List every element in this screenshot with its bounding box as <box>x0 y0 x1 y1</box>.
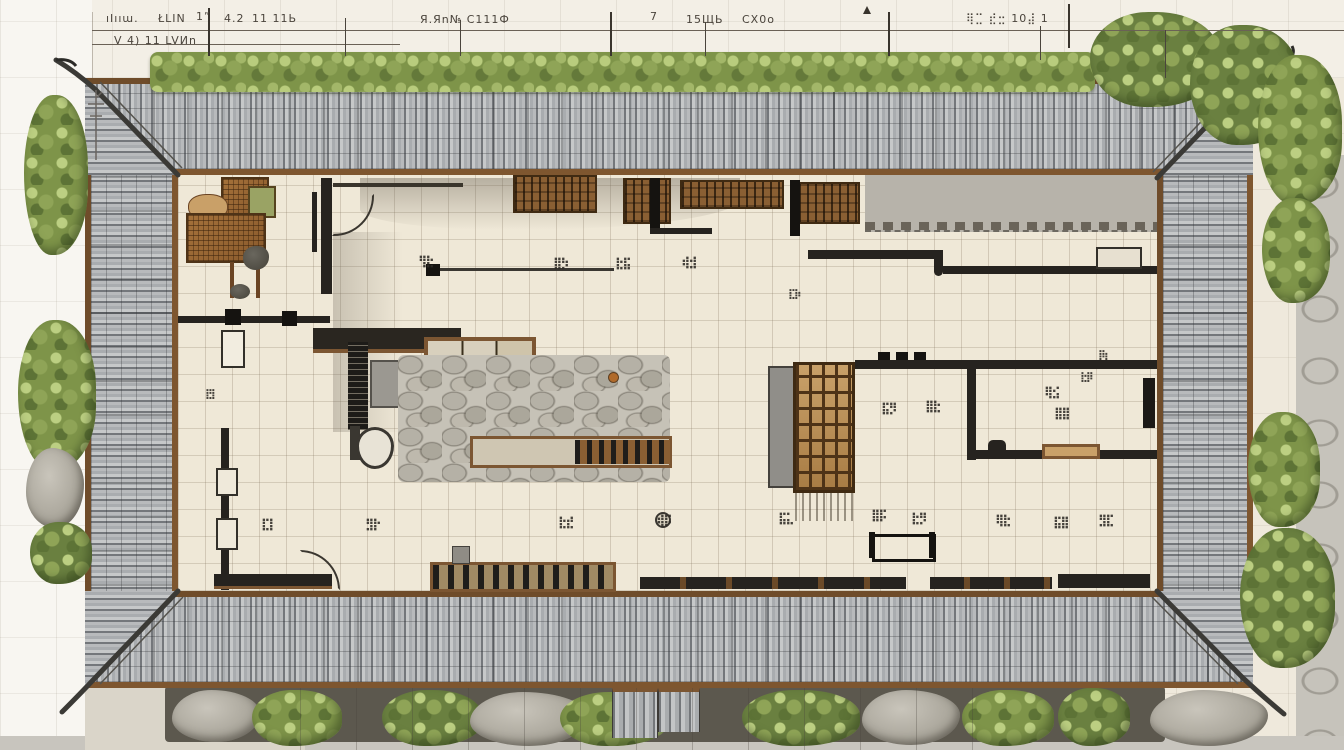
room-label: ⣗⣞ <box>558 515 573 529</box>
dark-lattice-rack <box>348 342 368 430</box>
ivy-right <box>1262 198 1330 303</box>
left-shelf-2 <box>216 518 238 550</box>
bottom-band-2 <box>430 562 616 592</box>
lattice-window-4 <box>797 182 860 224</box>
stool <box>230 284 250 299</box>
dimension-label: ⢿⣉ ⣞⣒ 10⣼ 1 <box>966 12 1049 25</box>
bottom-band-3 <box>640 577 906 589</box>
bench-box <box>452 546 470 564</box>
tree-right-edge <box>1258 55 1342 205</box>
bush-bottom-5 <box>962 690 1054 746</box>
dimension-label: СХ0о <box>742 13 775 26</box>
room-label: ⣗⡻ <box>911 511 926 525</box>
dimension-label: 11 11Ь <box>252 12 297 25</box>
counter-wall-a <box>808 250 942 259</box>
bush-bottom-6 <box>1058 688 1130 746</box>
bottom-band-4 <box>930 577 1052 589</box>
pot-stub <box>988 440 1006 458</box>
dim-arrow <box>863 6 871 14</box>
bush-left-top <box>24 95 88 255</box>
dimension-label: 7 <box>650 10 658 23</box>
top-hedge <box>150 52 1095 92</box>
room-label: ⣿⣿ <box>1054 406 1069 420</box>
partition-wall <box>321 178 332 294</box>
right-room-left-wall <box>967 360 976 460</box>
dim-tick-5 <box>1165 30 1166 78</box>
dimension-label: V 4) 11 LVИո <box>114 34 197 47</box>
shelf-band-lattice <box>575 440 670 464</box>
left-shelf-1 <box>216 468 238 496</box>
dimension-label: ıIııա. <box>106 12 139 25</box>
dim-tick-bold-4 <box>1068 4 1070 48</box>
top-wall-line <box>333 183 463 187</box>
low-table <box>872 534 936 562</box>
crenel-3 <box>914 352 926 360</box>
room-label: ⣿⡳ <box>553 256 568 270</box>
room-label: ⣯⣅ <box>778 511 793 525</box>
room-label: ⣏⡇ <box>261 517 276 531</box>
lattice-window-2 <box>623 178 671 224</box>
column-dot <box>608 372 619 383</box>
room-label: ⢿⣗ <box>995 513 1010 527</box>
right-room-window <box>1042 444 1100 459</box>
room-label: ⣿⣗ <box>925 399 940 413</box>
room-label: ⣗⡿ <box>1080 372 1092 383</box>
lattice-screen-door <box>793 362 855 493</box>
room-label: ⣗⣯ <box>615 256 630 270</box>
room-label: ⢾⣺ <box>681 255 696 269</box>
crenel-1 <box>878 352 890 360</box>
room-label: ⡿⡆ <box>1098 350 1110 361</box>
dim-line-main <box>92 30 1344 31</box>
dimension-label: 4.2 <box>224 12 245 25</box>
low-wall <box>178 316 330 323</box>
bottom-band-5 <box>1058 574 1150 588</box>
room-label: ⣯⣿ <box>1053 515 1068 529</box>
dimension-label: 15ЩЬ <box>686 13 724 26</box>
dim-tick-4 <box>1040 26 1041 60</box>
low-table-end-left <box>869 532 875 558</box>
bush-left-low <box>30 522 92 584</box>
bush-right-low <box>1240 528 1335 668</box>
lattice-window-3 <box>680 180 784 209</box>
dim-tick-bold-2 <box>610 12 612 56</box>
room-label: ⣏⡷ <box>788 289 800 300</box>
dimension-label: ŁLIN <box>158 12 186 25</box>
bush-right-mid <box>1248 412 1320 527</box>
right-wall-window <box>1143 378 1155 428</box>
grey-door-leaf <box>768 366 796 488</box>
left-window <box>221 330 245 368</box>
lattice-window-1 <box>513 175 597 213</box>
bush-bottom-2 <box>382 690 482 746</box>
wall-bracket <box>312 192 317 252</box>
low-table-end-right <box>929 532 935 558</box>
entry-post-left <box>650 178 660 232</box>
roof-band-bottom <box>85 591 1253 688</box>
entry-post-right <box>790 180 800 236</box>
dim-tick-bold-3 <box>888 12 890 56</box>
room-label: ⢻⣗ <box>418 254 433 268</box>
room-label: ⣻⣏ <box>1098 513 1113 527</box>
dim-tick-3 <box>705 22 706 56</box>
tile-awning-2 <box>658 688 700 732</box>
wall-shelf <box>1096 247 1142 269</box>
counter-wall-b <box>934 250 943 276</box>
veranda-line <box>428 268 614 271</box>
room-label: ⣟⡇ <box>205 389 217 400</box>
roof-band-top <box>85 78 1253 175</box>
room-label: ⢿⣪ <box>1044 385 1059 399</box>
dimension-label: 1” <box>196 10 211 23</box>
room-label: ⢾⡯ <box>656 513 671 527</box>
room-label: ⣯⡻ <box>881 401 896 415</box>
floor-plan-sheet: ıIııա. ŁLIN 1” 4.2 11 11Ь Я.Яո№ С111Ф 7 … <box>0 0 1344 750</box>
room-label: ⣻⡗ <box>365 517 380 531</box>
bush-bottom-1 <box>252 690 342 746</box>
tile-awning-1 <box>612 688 658 738</box>
crenel-2 <box>896 352 908 360</box>
room-label: ⣿⡯ <box>871 508 886 522</box>
threshold-hatch <box>795 493 853 521</box>
left-divider-wall <box>221 428 229 590</box>
wall-post-1 <box>225 309 241 325</box>
rubble-line <box>865 222 1157 230</box>
entry-step-wall <box>650 228 712 234</box>
bush-bottom-4 <box>742 690 860 746</box>
dimension-label: Я.Яո№ С111Ф <box>420 13 510 26</box>
wall-post-2 <box>282 311 297 326</box>
antenna-sketch <box>84 90 108 165</box>
right-room-top-wall <box>855 360 1157 369</box>
dim-tick-1 <box>345 18 346 56</box>
